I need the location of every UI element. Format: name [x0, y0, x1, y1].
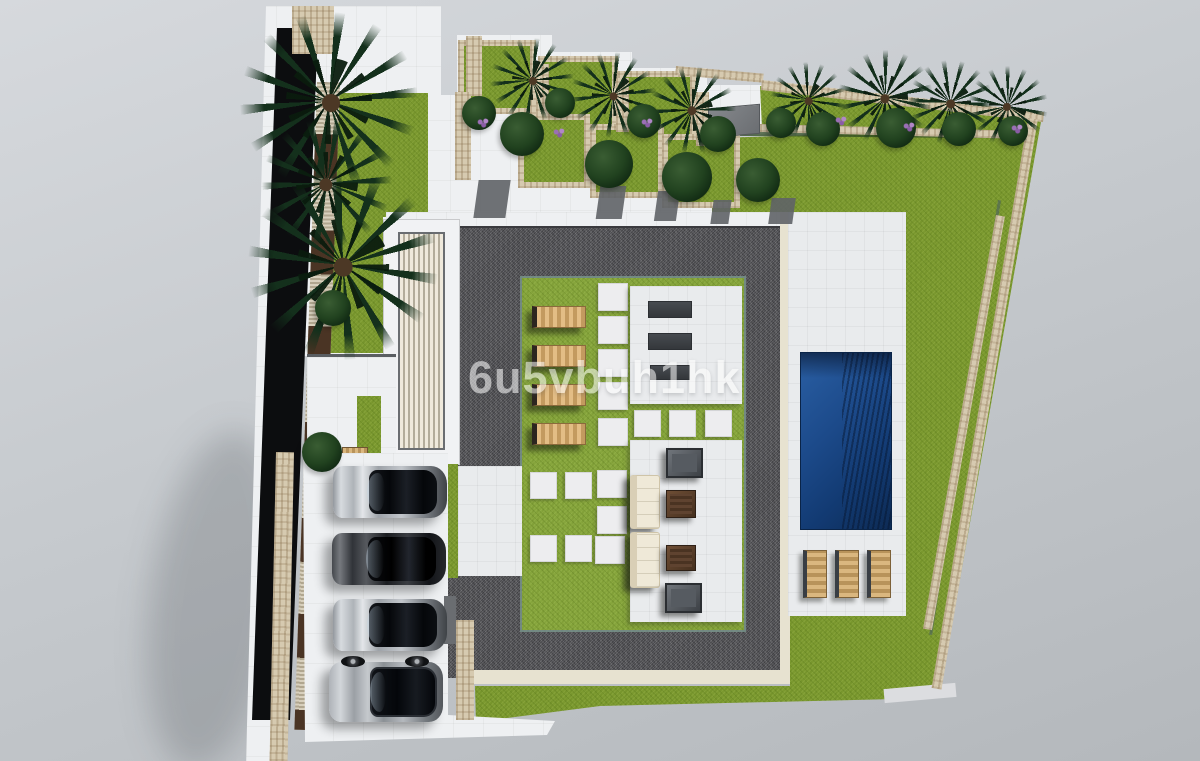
car-cabin [368, 537, 435, 581]
stone-pillar [466, 36, 482, 96]
shrub [545, 88, 575, 118]
swimming-pool [800, 352, 892, 530]
sun-lounger [532, 306, 586, 328]
flower-cluster [640, 118, 654, 128]
roof-rim-bottom [472, 670, 792, 684]
pool-deck [788, 212, 906, 616]
shrub [500, 112, 544, 156]
car-wheel [341, 656, 365, 667]
paving-tile [565, 472, 592, 499]
paving-tile [595, 536, 625, 564]
car-cabin [370, 667, 437, 717]
lounge-table-brown [666, 545, 696, 571]
courtyard [520, 276, 746, 632]
car-wheel [405, 656, 429, 667]
shrub [942, 112, 976, 146]
parked-car-black [332, 533, 446, 585]
paving-tile [598, 283, 628, 311]
flower-cluster [834, 116, 848, 126]
flower-cluster [902, 122, 916, 132]
shrub [585, 140, 633, 188]
side-patio [458, 466, 522, 576]
lounge-table-brown [666, 490, 696, 518]
lounge-table-gray [665, 583, 702, 613]
paving-tile [669, 410, 696, 437]
flower-cluster [476, 118, 490, 128]
wall-shadow [473, 180, 510, 218]
paving-tile [565, 535, 592, 562]
skylight [648, 333, 692, 350]
shrub [766, 108, 796, 138]
wall-shadow [768, 198, 796, 224]
paving-tile [598, 316, 628, 344]
flower-cluster [552, 128, 566, 138]
parked-car-silver [333, 466, 447, 518]
shrub [662, 152, 712, 202]
paving-tile [530, 535, 557, 562]
paving-tile [705, 410, 732, 437]
paving-tile [597, 506, 627, 534]
wall-shadow [710, 200, 731, 224]
pool-lounger [867, 550, 891, 598]
sun-lounger [532, 423, 586, 445]
shrub [700, 116, 736, 152]
paving-tile [597, 470, 627, 498]
paving-tile [634, 410, 661, 437]
pool-lounger [803, 550, 827, 598]
parked-suv [329, 662, 443, 722]
flower-cluster [1010, 124, 1024, 134]
site-plan-rendering: 6u5vbuh1hk [0, 0, 1200, 761]
shrub [315, 290, 351, 326]
car-cabin [369, 470, 436, 514]
parked-car-silver [333, 599, 447, 651]
wall-shadow [596, 186, 627, 219]
car-cabin [369, 603, 436, 647]
pool-ripples [842, 353, 892, 529]
pool-edge-shade [801, 353, 891, 378]
outdoor-sofa [630, 475, 660, 529]
watermark-text: 6u5vbuh1hk [468, 352, 740, 404]
lounge-terrace [630, 440, 742, 622]
gate-pillar [456, 620, 474, 720]
skylight [648, 301, 692, 318]
shrub [302, 432, 342, 472]
outdoor-sofa [630, 532, 660, 588]
shrub [736, 158, 780, 202]
lounge-table-gray [666, 448, 703, 478]
paving-tile [530, 472, 557, 499]
pool-lounger [835, 550, 859, 598]
paving-tile [598, 418, 628, 446]
